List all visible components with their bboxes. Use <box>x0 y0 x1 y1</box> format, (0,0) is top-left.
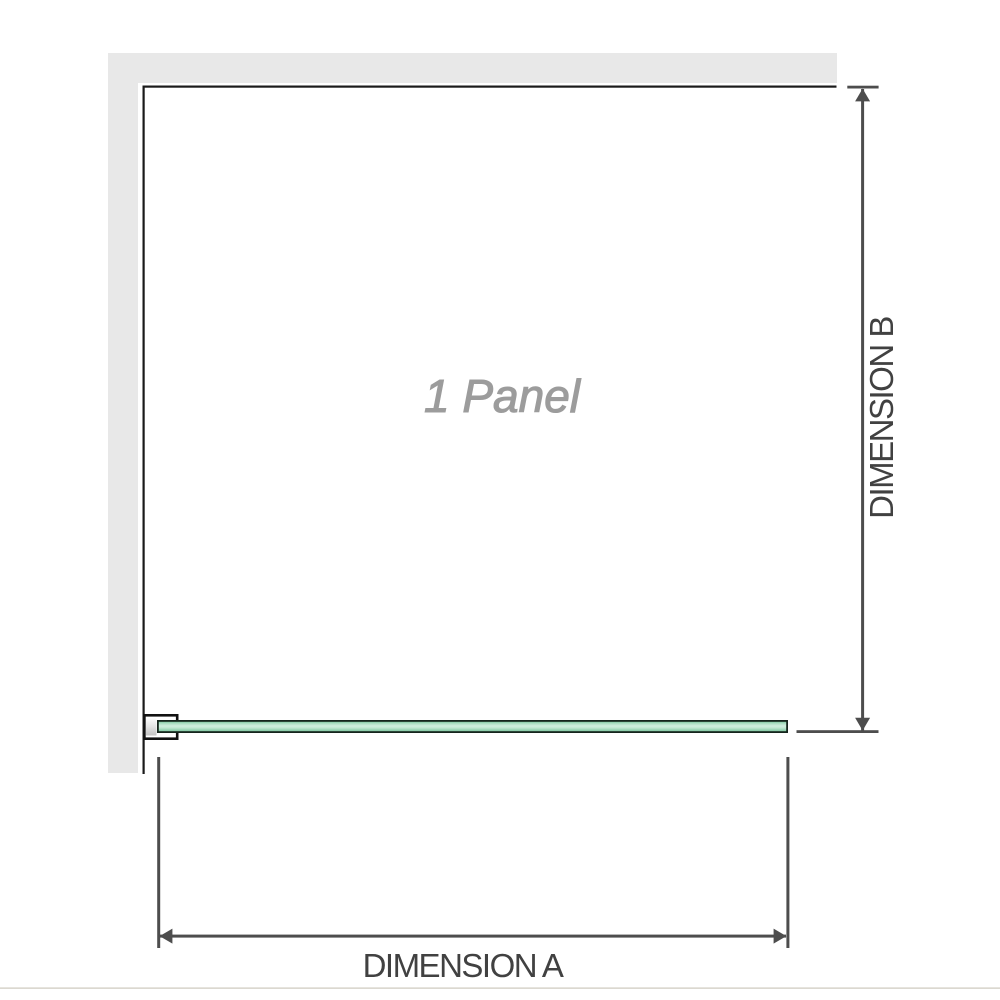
svg-text:DIMENSION A: DIMENSION A <box>363 947 564 984</box>
svg-text:DIMENSION B: DIMENSION B <box>863 317 900 519</box>
svg-text:1 Panel: 1 Panel <box>424 370 582 422</box>
